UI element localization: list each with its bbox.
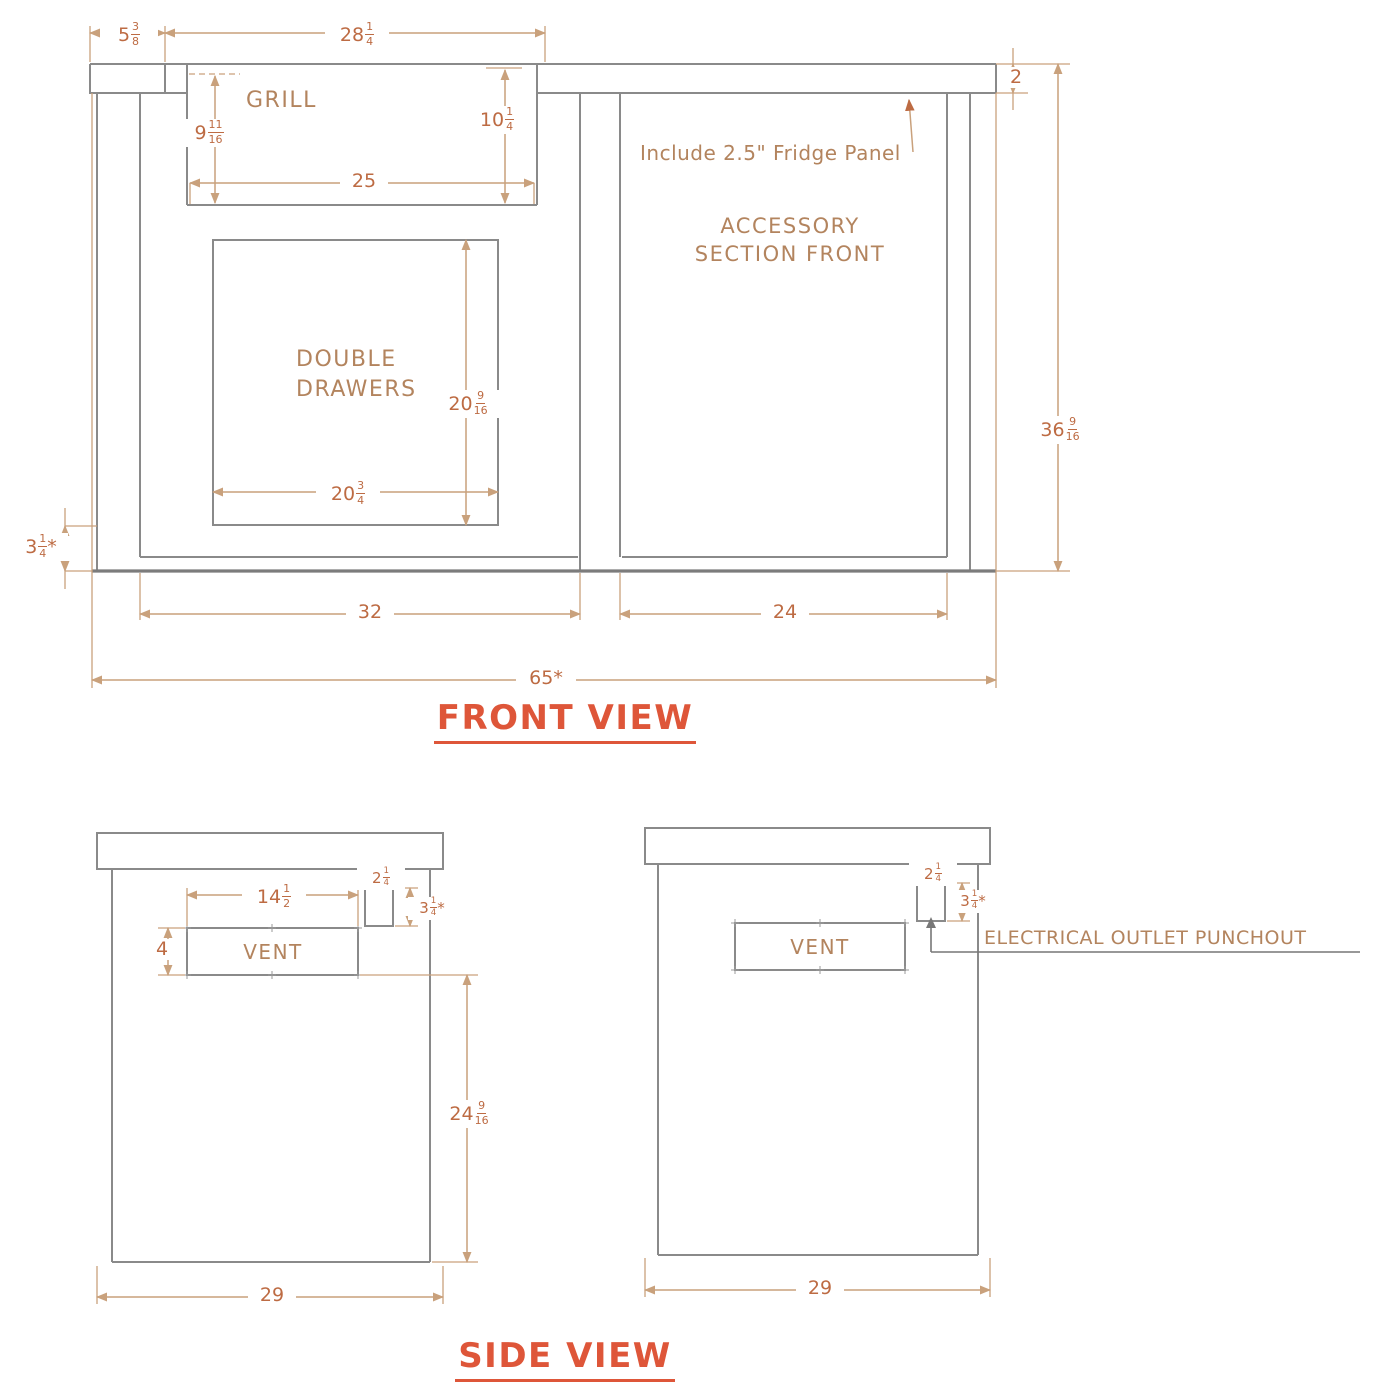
dim-grill-depth-right: 1014 [466, 106, 528, 134]
electrical-punchout-label: ELECTRICAL OUTLET PUNCHOUT [984, 927, 1306, 949]
dim-grill-width: 25 [340, 171, 388, 192]
dim-grill-depth-left: 91116 [178, 119, 240, 147]
dim-drawer-opening-height: 20916 [434, 390, 502, 418]
fridge-note-arrow [909, 100, 913, 152]
vent-label-right: VENT [785, 934, 855, 961]
dim-punchout-width-left: 214 [357, 867, 405, 890]
grill-island-technical-drawing: 538 2814 GRILL 91116 1014 25 2 Include 2… [0, 0, 1400, 1400]
dim-depth-left: 29 [248, 1285, 296, 1306]
dim-end-panel-width: 538 [100, 21, 158, 49]
fridge-panel-note: Include 2.5" Fridge Panel [640, 141, 901, 165]
accessory-section-label: ACCESSORY SECTION FRONT [690, 212, 890, 269]
dim-vent-width: 1412 [242, 883, 306, 911]
dim-overall-width: 65* [516, 668, 576, 689]
extension-lines [65, 26, 1070, 1304]
dim-grill-section-width: 32 [346, 602, 394, 623]
dim-vent-to-base: 24916 [435, 1100, 503, 1128]
dim-punchout-height-right: 314* [948, 890, 998, 913]
dim-punchout-height-left: 314* [408, 897, 456, 920]
double-drawers-label: DOUBLE DRAWERS [296, 345, 417, 404]
dim-overall-height: 36916 [1026, 416, 1094, 444]
dim-depth-right: 29 [796, 1278, 844, 1299]
dim-grill-cutout-width: 2814 [325, 21, 389, 49]
dim-countertop-thickness: 2 [1004, 67, 1028, 88]
vent-label-left: VENT [238, 939, 308, 966]
dim-drawer-opening-width: 2034 [316, 480, 380, 508]
dim-vent-height: 4 [146, 939, 178, 960]
dim-accessory-section-width: 24 [761, 602, 809, 623]
dimension-lines [65, 33, 1058, 1297]
leader-arrowhead [926, 917, 936, 928]
grill-label: GRILL [246, 86, 317, 116]
front-view-title: FRONT VIEW [415, 698, 715, 738]
dim-base-height: 314* [14, 533, 68, 561]
side-view-right-structure [645, 828, 990, 1255]
side-view-title: SIDE VIEW [415, 1336, 715, 1376]
dim-punchout-width-right: 214 [909, 863, 957, 886]
